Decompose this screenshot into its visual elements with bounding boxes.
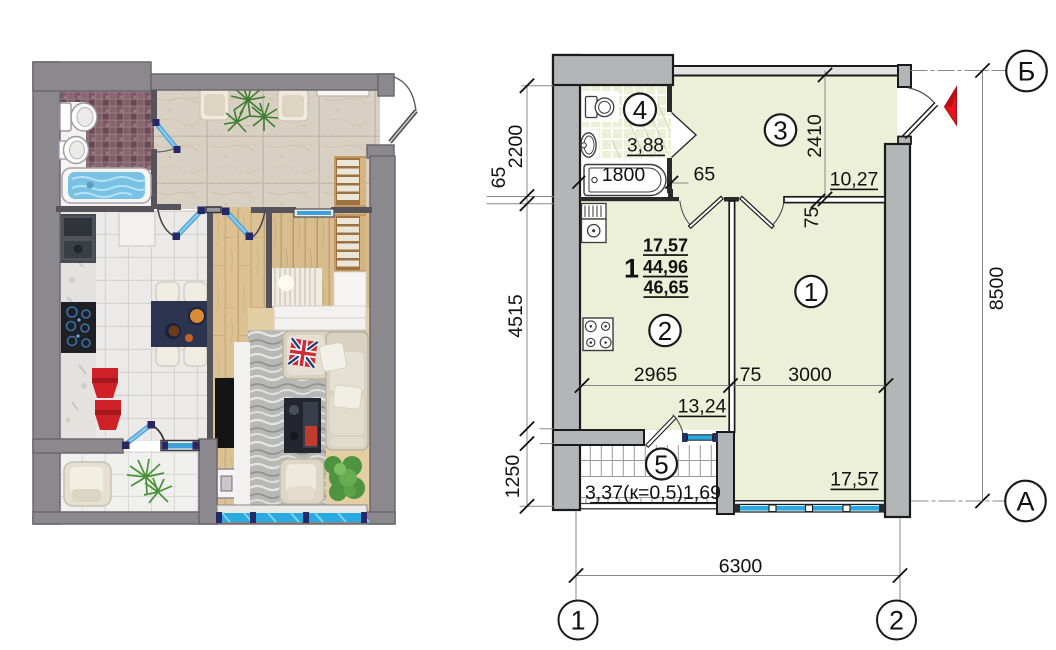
svg-text:4515: 4515 xyxy=(505,294,527,338)
svg-text:3,37(к=0,5)1,69: 3,37(к=0,5)1,69 xyxy=(585,482,721,504)
svg-text:А: А xyxy=(1016,487,1034,517)
svg-text:5: 5 xyxy=(654,450,668,480)
svg-text:75: 75 xyxy=(740,364,762,386)
svg-text:75: 75 xyxy=(801,207,823,229)
svg-text:2410: 2410 xyxy=(804,114,826,158)
svg-text:17,57: 17,57 xyxy=(643,236,688,256)
svg-text:1250: 1250 xyxy=(502,455,524,499)
svg-text:8500: 8500 xyxy=(986,267,1008,311)
svg-text:3,88: 3,88 xyxy=(627,136,664,157)
svg-text:46,65: 46,65 xyxy=(643,278,688,298)
svg-text:17,57: 17,57 xyxy=(830,469,879,491)
svg-text:44,96: 44,96 xyxy=(643,257,688,277)
svg-text:2: 2 xyxy=(889,606,904,636)
svg-text:6300: 6300 xyxy=(719,556,763,578)
svg-text:1: 1 xyxy=(624,254,639,284)
svg-text:10,27: 10,27 xyxy=(830,169,879,191)
svg-text:65: 65 xyxy=(488,167,510,189)
svg-text:2200: 2200 xyxy=(505,125,527,169)
svg-text:3000: 3000 xyxy=(788,364,832,386)
svg-text:1: 1 xyxy=(804,277,818,307)
svg-text:2965: 2965 xyxy=(634,364,678,386)
svg-text:65: 65 xyxy=(694,164,716,186)
svg-text:13,24: 13,24 xyxy=(678,396,727,418)
svg-text:3: 3 xyxy=(773,116,787,146)
svg-text:4: 4 xyxy=(633,95,647,125)
svg-text:2: 2 xyxy=(658,316,672,346)
svg-text:1800: 1800 xyxy=(602,164,646,186)
svg-text:1: 1 xyxy=(570,606,585,636)
svg-text:Б: Б xyxy=(1018,57,1036,87)
